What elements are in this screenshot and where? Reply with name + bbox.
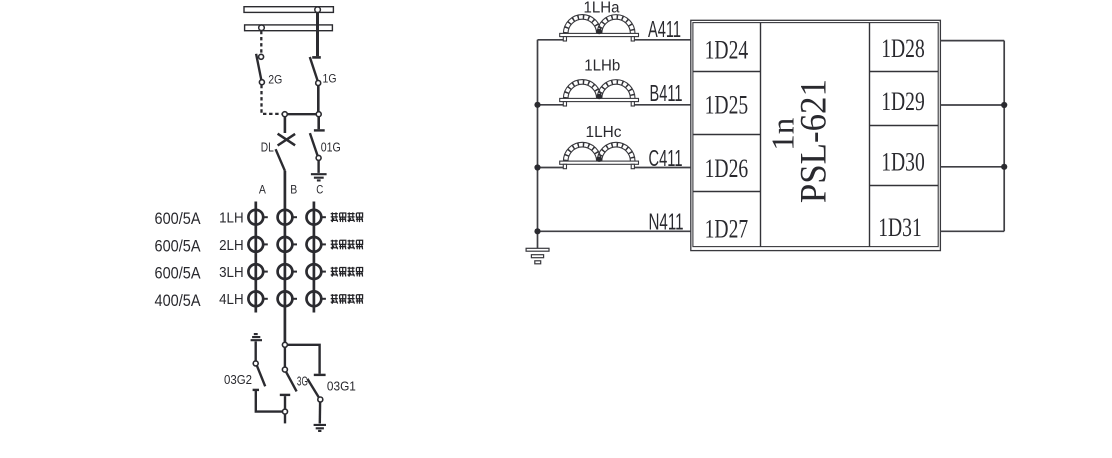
svg-text:1LH: 1LH: [219, 211, 244, 227]
svg-text:03G1: 03G1: [327, 379, 356, 394]
svg-text:B: B: [290, 185, 297, 197]
svg-text:DL: DL: [261, 140, 274, 154]
svg-text:C: C: [316, 185, 323, 197]
svg-text:600/5A: 600/5A: [155, 264, 202, 283]
svg-text:A: A: [259, 185, 266, 197]
svg-text:600/5A: 600/5A: [155, 209, 202, 228]
svg-text:1LHc: 1LHc: [586, 124, 622, 141]
svg-text:1D26: 1D26: [705, 154, 749, 183]
svg-text:600/5A: 600/5A: [155, 236, 202, 255]
svg-text:3LH: 3LH: [219, 265, 244, 281]
svg-text:B411: B411: [650, 80, 683, 106]
svg-text:01G: 01G: [321, 140, 341, 154]
svg-text:1D29: 1D29: [881, 87, 925, 116]
svg-text:1G: 1G: [323, 72, 337, 86]
svg-text:1D24: 1D24: [705, 35, 749, 64]
svg-text:4LH: 4LH: [219, 292, 244, 308]
svg-text:1D31: 1D31: [878, 213, 922, 242]
svg-text:2LH: 2LH: [219, 238, 244, 254]
svg-text:A411: A411: [648, 16, 681, 42]
svg-text:03G2: 03G2: [224, 372, 252, 387]
svg-text:400/5A: 400/5A: [155, 291, 202, 310]
svg-text:N411: N411: [649, 208, 684, 234]
svg-text:1D28: 1D28: [881, 34, 925, 63]
svg-text:1LHa: 1LHa: [584, 0, 620, 16]
svg-text:PSL-621: PSL-621: [794, 79, 835, 203]
svg-text:1D27: 1D27: [705, 214, 749, 243]
svg-text:3G: 3G: [297, 375, 308, 389]
svg-text:1LHb: 1LHb: [584, 57, 620, 74]
svg-text:1D30: 1D30: [881, 148, 925, 177]
svg-text:2G: 2G: [268, 73, 282, 87]
svg-text:1D25: 1D25: [705, 90, 749, 119]
svg-text:C411: C411: [649, 145, 683, 171]
